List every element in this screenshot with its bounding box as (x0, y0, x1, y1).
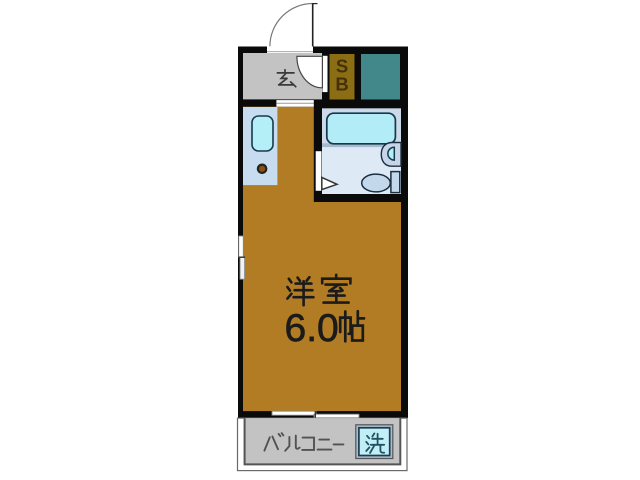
svg-text:B: B (335, 74, 348, 95)
svg-text:6.0: 6.0 (285, 307, 339, 350)
